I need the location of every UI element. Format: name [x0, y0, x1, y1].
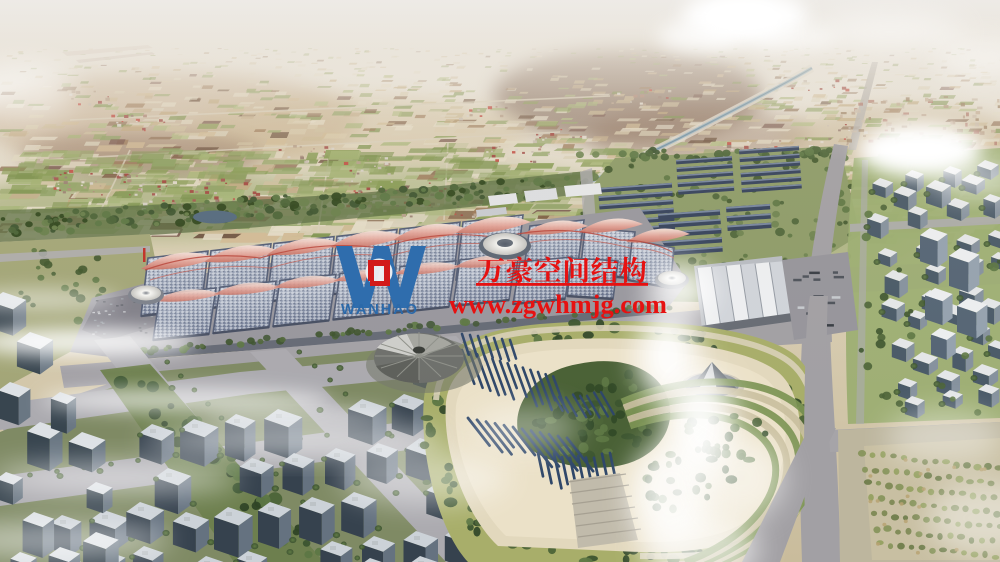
svg-text:www.zgwhmjg.com: www.zgwhmjg.com: [449, 289, 667, 319]
svg-text:WANHAO: WANHAO: [341, 302, 419, 318]
